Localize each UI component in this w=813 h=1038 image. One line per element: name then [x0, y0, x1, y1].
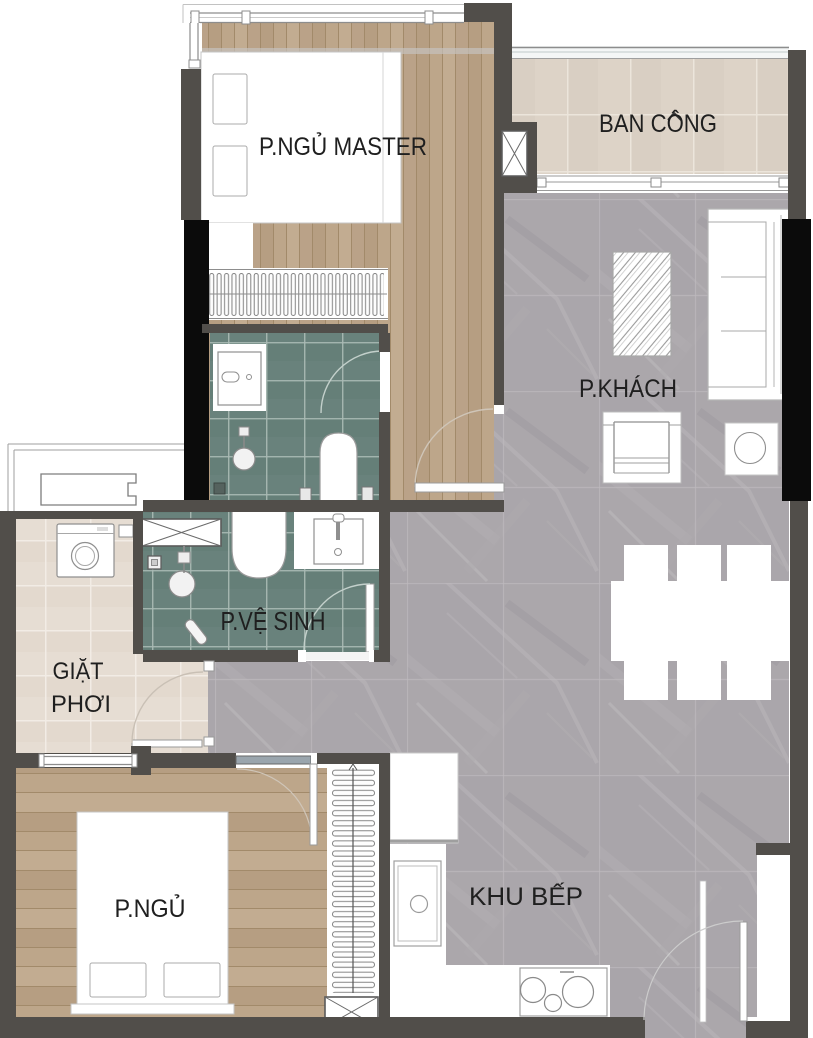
svg-text:KHU BẾP: KHU BẾP — [469, 882, 583, 911]
svg-text:GIẶT: GIẶT — [53, 658, 104, 685]
svg-text:P.VỆ SINH: P.VỆ SINH — [221, 606, 326, 636]
svg-text:P.NGỦ: P.NGỦ — [115, 893, 186, 923]
svg-text:PHƠI: PHƠI — [51, 691, 111, 718]
svg-text:P.KHÁCH: P.KHÁCH — [579, 374, 677, 403]
svg-text:BAN CÔNG: BAN CÔNG — [599, 109, 717, 138]
svg-text:P.NGỦ MASTER: P.NGỦ MASTER — [259, 131, 427, 161]
